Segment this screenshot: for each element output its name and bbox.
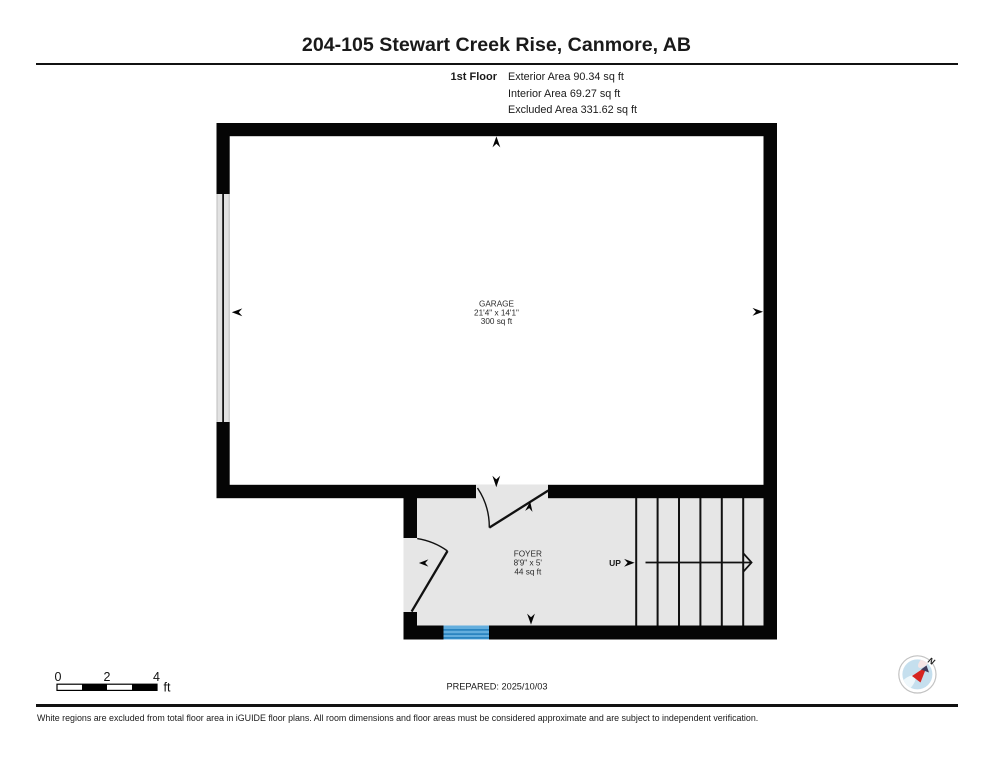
svg-text:300 sq ft: 300 sq ft [481, 317, 513, 326]
svg-text:0: 0 [55, 670, 62, 684]
svg-text:2: 2 [104, 670, 111, 684]
svg-text:GARAGE: GARAGE [479, 299, 515, 308]
svg-text:UP: UP [609, 558, 621, 568]
svg-text:PREPARED: 2025/10/03: PREPARED: 2025/10/03 [447, 682, 548, 692]
svg-text:4: 4 [153, 670, 160, 684]
svg-text:ft: ft [164, 681, 171, 695]
svg-text:8'9" x 5': 8'9" x 5' [514, 559, 543, 568]
svg-text:21'4" x 14'1": 21'4" x 14'1" [474, 308, 519, 317]
svg-text:44 sq ft: 44 sq ft [514, 568, 542, 577]
svg-text:FOYER: FOYER [514, 550, 542, 559]
